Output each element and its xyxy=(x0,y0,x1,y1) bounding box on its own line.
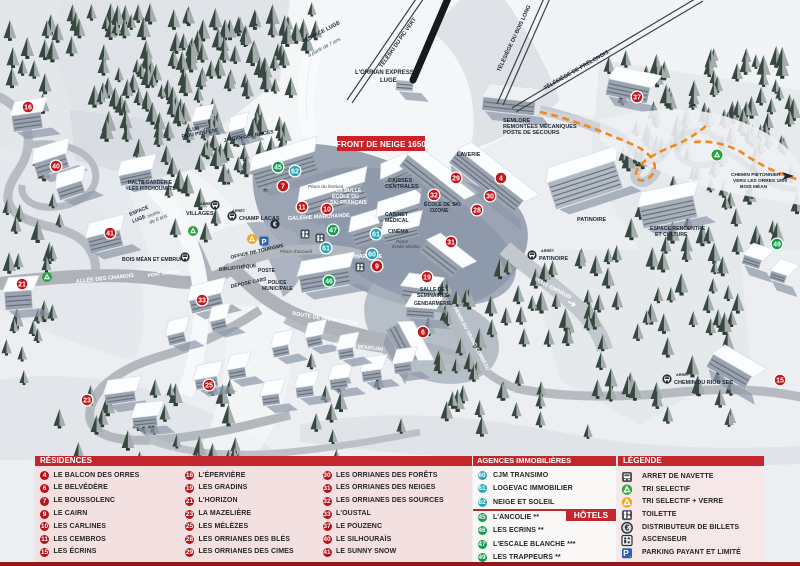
svg-text:16: 16 xyxy=(24,105,32,112)
svg-text:23: 23 xyxy=(83,398,91,405)
svg-text:60: 60 xyxy=(368,252,376,259)
svg-text:29: 29 xyxy=(452,176,460,183)
svg-text:7: 7 xyxy=(281,184,285,191)
svg-text:31: 31 xyxy=(447,240,455,247)
svg-text:49: 49 xyxy=(773,242,781,249)
svg-text:47: 47 xyxy=(329,228,337,235)
svg-text:33: 33 xyxy=(198,298,206,305)
svg-text:25: 25 xyxy=(205,383,213,390)
svg-text:15: 15 xyxy=(776,378,784,385)
svg-text:21: 21 xyxy=(18,282,26,289)
svg-text:11: 11 xyxy=(298,205,306,212)
svg-text:28: 28 xyxy=(473,208,481,215)
svg-text:40: 40 xyxy=(52,164,60,171)
svg-text:37: 37 xyxy=(633,95,641,102)
svg-text:10: 10 xyxy=(323,207,331,214)
svg-text:32: 32 xyxy=(430,193,438,200)
svg-text:41: 41 xyxy=(106,231,114,238)
svg-text:45: 45 xyxy=(274,165,282,172)
svg-text:61: 61 xyxy=(372,232,380,239)
svg-text:19: 19 xyxy=(423,275,431,282)
svg-text:30: 30 xyxy=(486,194,494,201)
svg-text:6: 6 xyxy=(421,330,425,337)
svg-text:61: 61 xyxy=(322,246,330,253)
svg-text:9: 9 xyxy=(375,264,379,271)
svg-text:62: 62 xyxy=(291,169,299,176)
svg-text:4: 4 xyxy=(499,176,503,183)
svg-text:46: 46 xyxy=(325,279,333,286)
